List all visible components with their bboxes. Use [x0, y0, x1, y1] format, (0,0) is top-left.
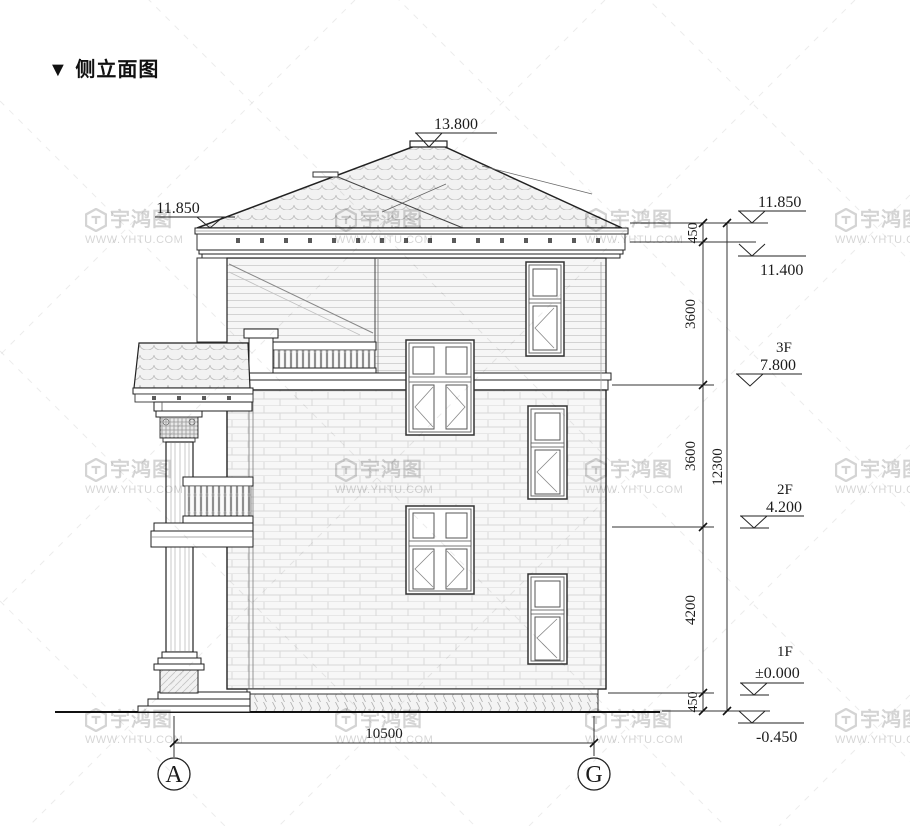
- dim-total-height: 12300: [710, 448, 726, 486]
- plinth: [247, 689, 598, 712]
- floor-label: 1F: [777, 644, 793, 660]
- porch-roof: [133, 343, 253, 411]
- level-value: 4.200: [766, 499, 802, 516]
- level-marker-2f: 2F 4.200: [740, 482, 804, 528]
- level-value: 13.800: [434, 116, 478, 133]
- dim-4200: 4200: [683, 595, 699, 625]
- eave-return-left: [197, 258, 227, 342]
- rear-ridge-step: [313, 172, 338, 177]
- main-cornice: [195, 228, 628, 258]
- dim-450-top: 450: [686, 223, 701, 244]
- narrow-window-2f: [528, 406, 567, 499]
- level-marker-3f: 3F 7.800: [736, 340, 802, 386]
- stair-window-upper: [406, 340, 474, 435]
- grid-axis-label: A: [165, 762, 183, 788]
- floor-label: 2F: [777, 482, 793, 498]
- newel-post-cap: [244, 329, 278, 338]
- grid-bubble-g: G: [578, 758, 610, 790]
- balusters: [274, 350, 375, 368]
- page-title: ▼ 侧立面图: [48, 53, 159, 82]
- level-value: ±0.000: [755, 665, 800, 682]
- dim-3600-b: 3600: [683, 441, 699, 471]
- drawing-canvas: 450 3600 3600 4200 450 12300 13.800 11.8…: [0, 0, 910, 826]
- dim-width: 10500: [365, 726, 403, 742]
- column-abacus: [156, 411, 202, 417]
- narrow-window-1f: [528, 574, 567, 664]
- level-value: -0.450: [756, 729, 797, 746]
- level-value: 11.850: [156, 200, 199, 217]
- porch-column: [154, 411, 204, 693]
- level-value: 7.800: [760, 357, 796, 374]
- level-value: 11.400: [760, 262, 803, 279]
- corinthian-capital: [160, 417, 198, 438]
- level-marker-ground: -0.450: [738, 711, 804, 746]
- main-roof: [197, 141, 622, 228]
- dim-3600-a: 3600: [683, 299, 699, 329]
- grid-bubble-a: A: [158, 758, 190, 790]
- column-base: [154, 652, 204, 670]
- level-marker-wall-top: 11.400: [738, 244, 806, 279]
- bottom-dimension: 10500: [170, 716, 598, 757]
- newel-post: [249, 338, 273, 374]
- narrow-window-3f: [526, 262, 564, 356]
- balusters: [185, 486, 251, 516]
- entrance-steps: [138, 692, 250, 712]
- column-pedestal: [160, 670, 198, 693]
- elevation-drawing: 450 3600 3600 4200 450 12300 13.800 11.8…: [0, 0, 910, 826]
- dim-450-bottom: 450: [686, 692, 701, 713]
- floor-label: 3F: [776, 340, 792, 356]
- grid-axis-label: G: [585, 762, 602, 788]
- stair-window-lower: [406, 506, 474, 594]
- porch-beam: [154, 402, 252, 411]
- right-dimension-chain: 450 3600 3600 4200 450 12300: [683, 219, 731, 715]
- level-marker-1f: 1F ±0.000: [740, 644, 804, 695]
- level-marker-eave-right: 11.850: [738, 194, 806, 223]
- level-value: 11.850: [758, 194, 801, 211]
